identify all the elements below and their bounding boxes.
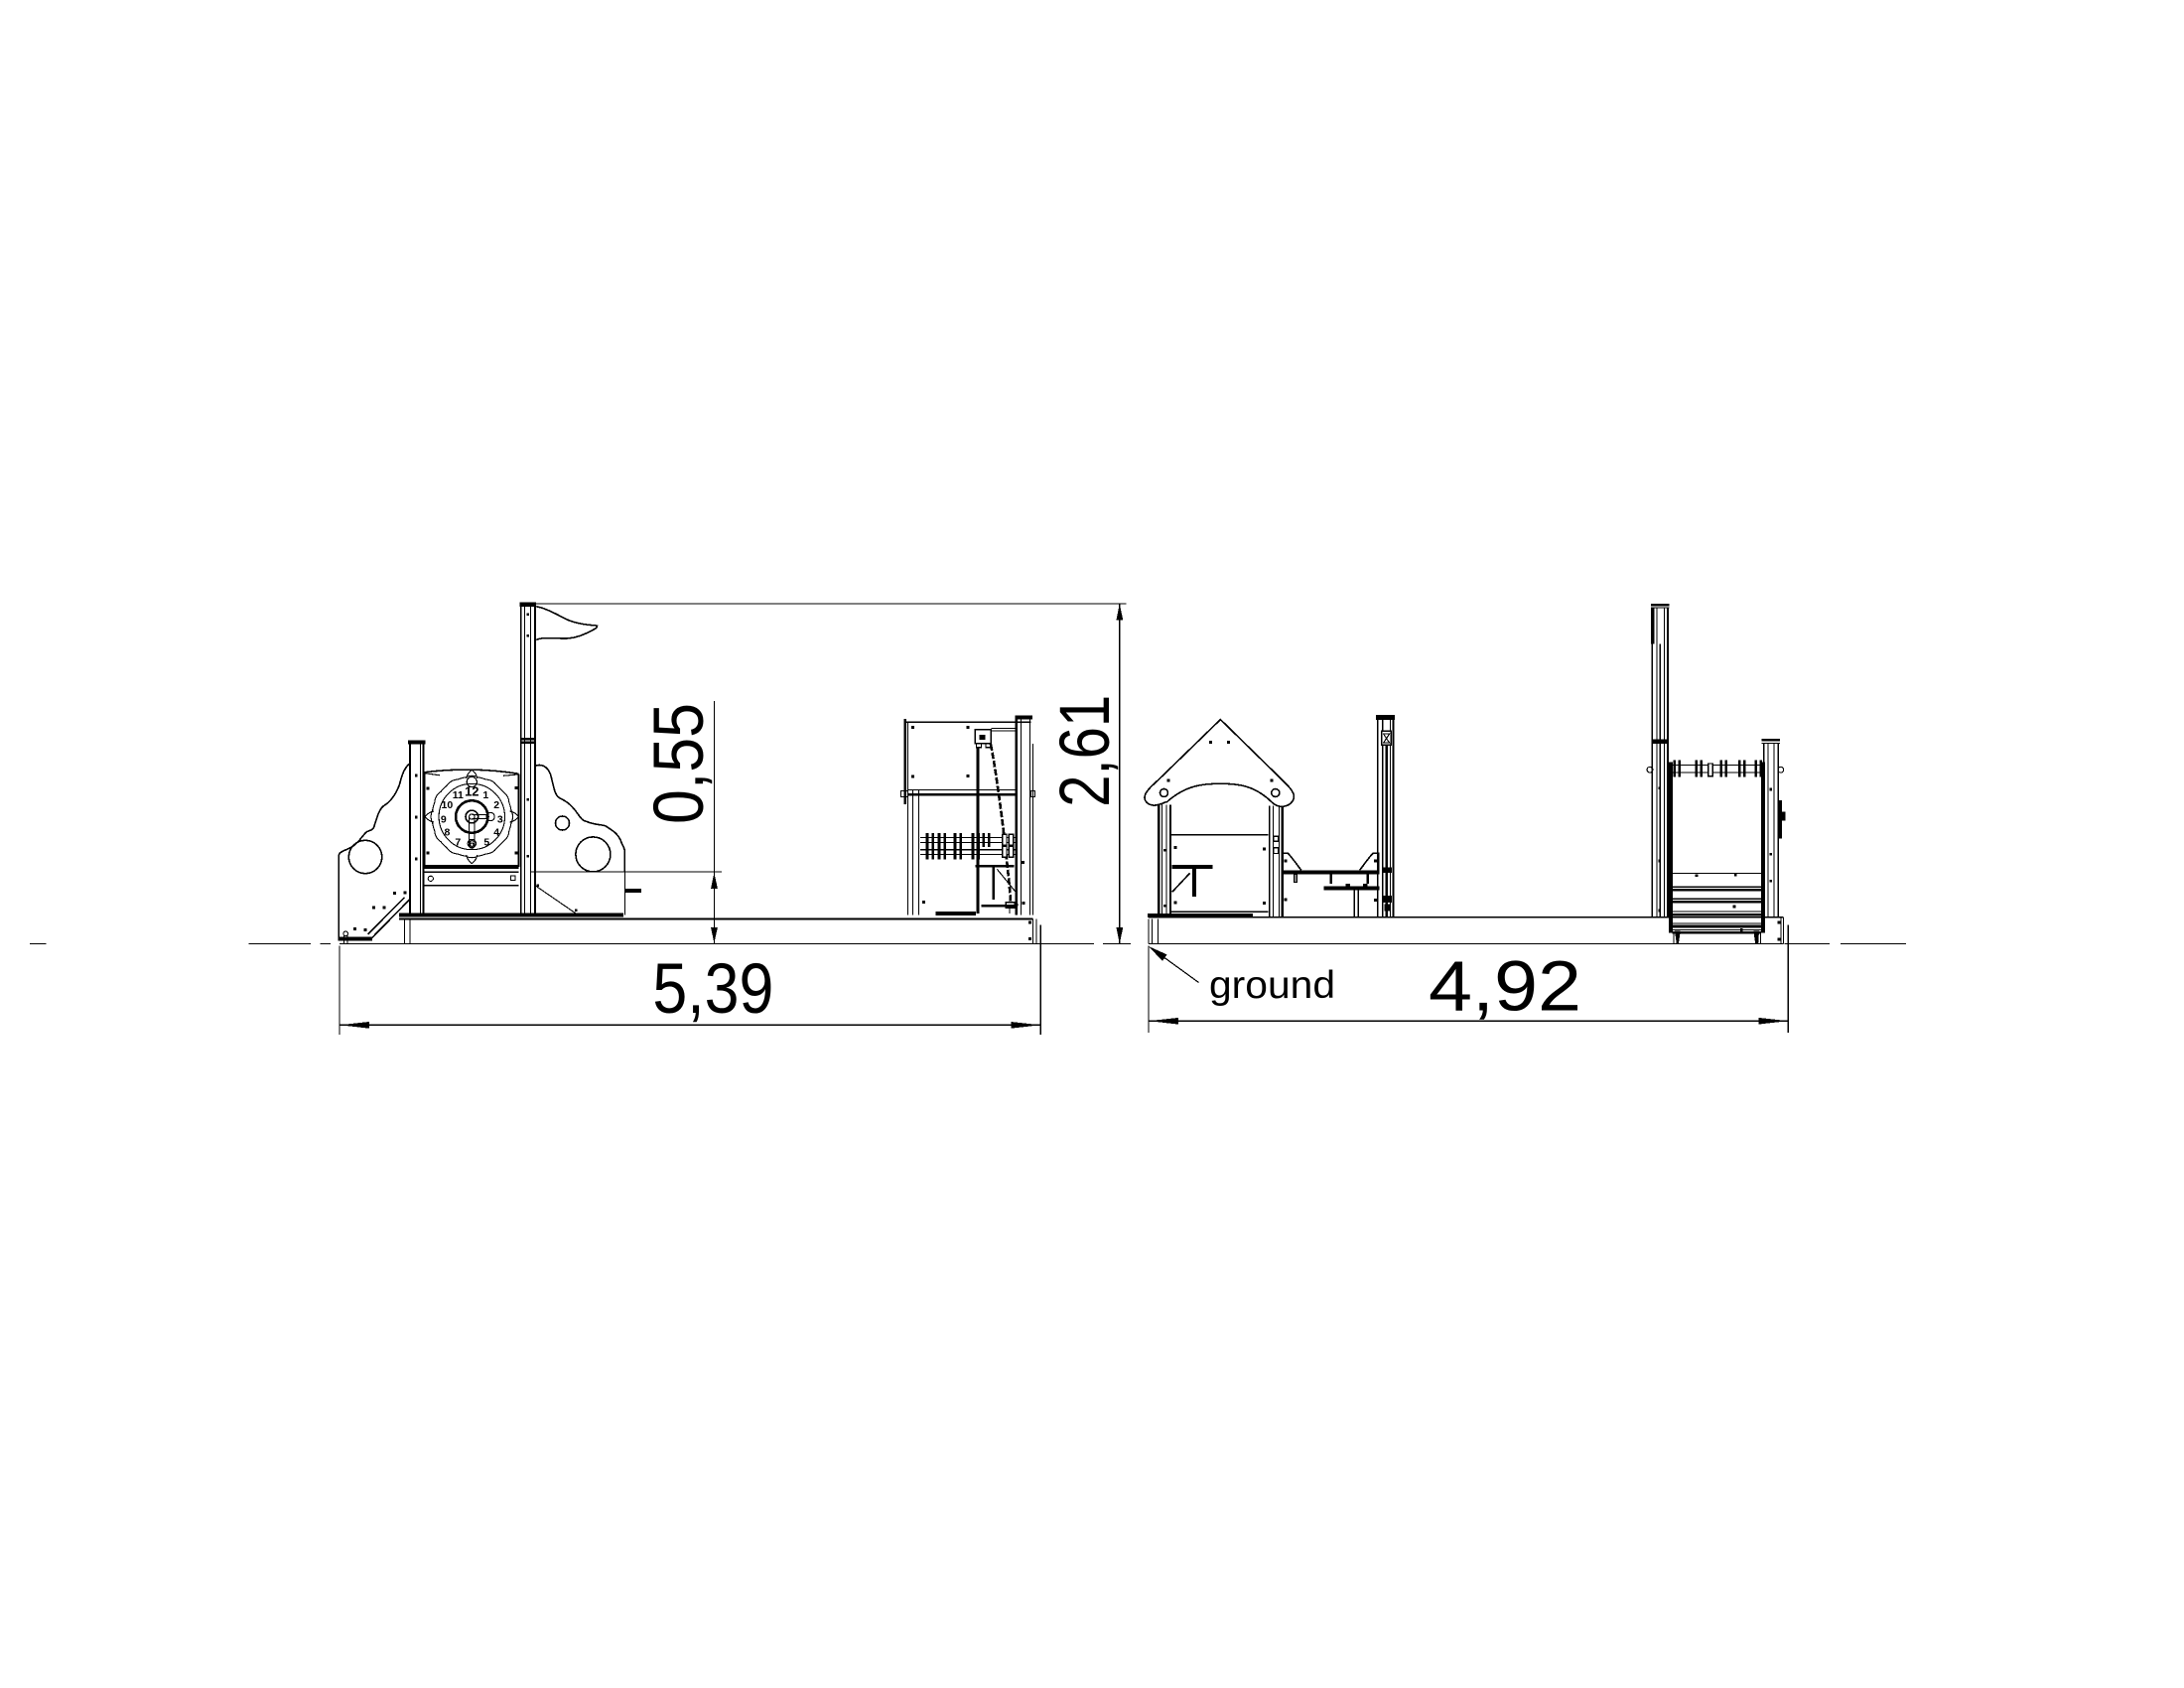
- svg-text:5,39: 5,39: [652, 950, 773, 1029]
- svg-text:11: 11: [453, 789, 464, 801]
- svg-text:12: 12: [465, 784, 478, 799]
- svg-text:8: 8: [444, 826, 450, 838]
- svg-text:ground: ground: [1209, 964, 1335, 1007]
- svg-text:7: 7: [455, 837, 461, 849]
- svg-text:2,61: 2,61: [1046, 695, 1125, 807]
- svg-text:2: 2: [493, 799, 499, 811]
- svg-text:9: 9: [441, 813, 447, 825]
- svg-text:1: 1: [482, 789, 488, 801]
- svg-text:0,55: 0,55: [640, 703, 719, 824]
- svg-text:4,92: 4,92: [1429, 948, 1581, 1027]
- svg-text:10: 10: [442, 799, 454, 811]
- svg-text:4: 4: [493, 826, 499, 838]
- svg-text:3: 3: [497, 813, 503, 825]
- svg-text:5: 5: [483, 837, 489, 849]
- svg-text:6: 6: [469, 838, 475, 850]
